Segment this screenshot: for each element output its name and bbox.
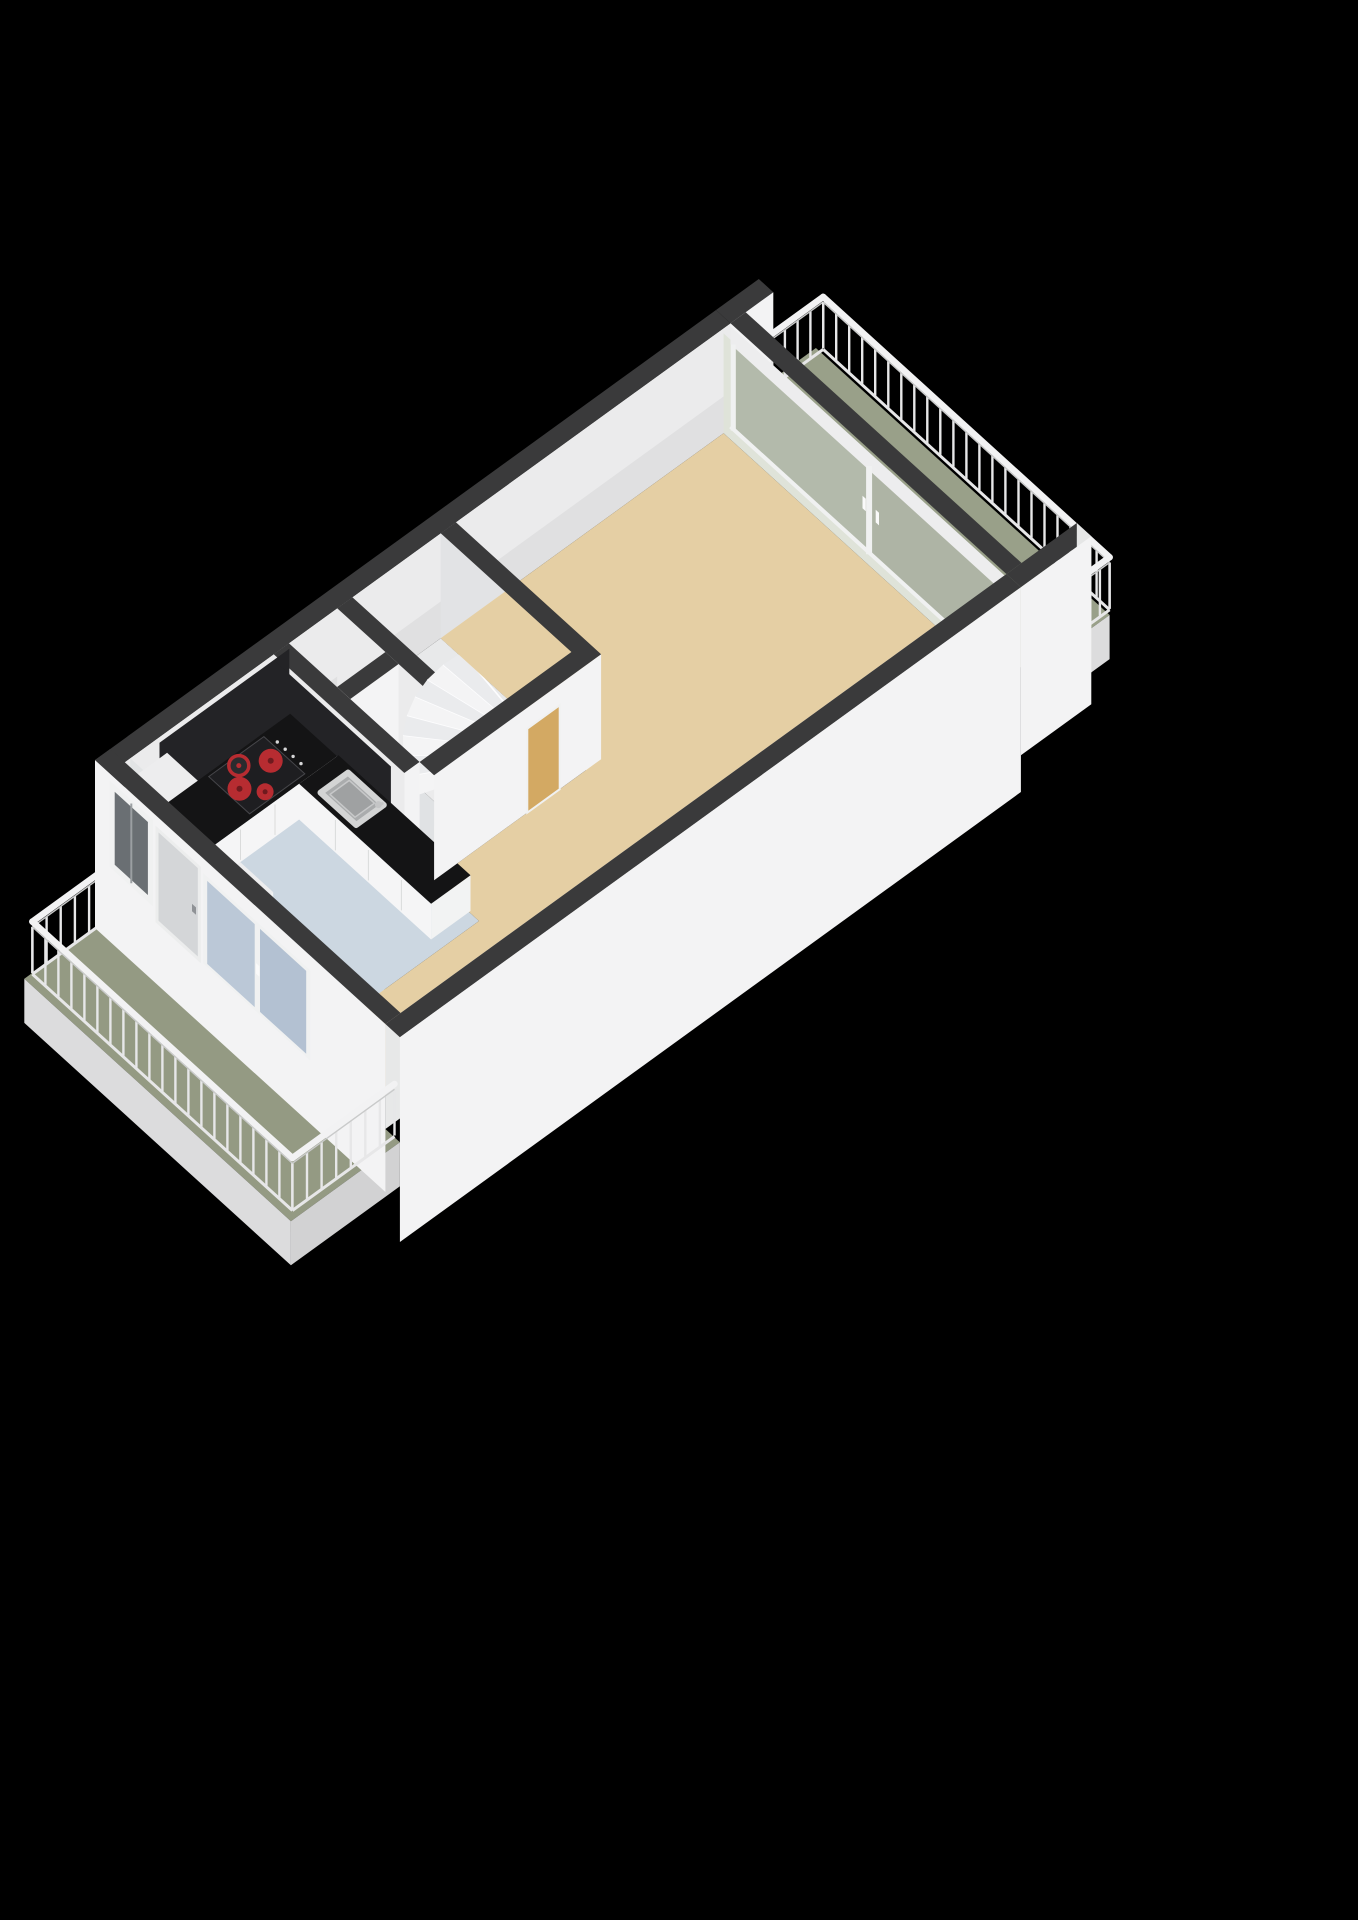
cooktop-knob <box>276 740 279 743</box>
cooktop-knob <box>291 755 294 758</box>
faucet-arm <box>378 804 382 805</box>
burner-dot <box>268 758 274 764</box>
burner-ring-center <box>236 763 241 768</box>
burner-dot <box>263 789 268 794</box>
burner-dot <box>237 786 243 792</box>
floorplan-viewport <box>0 0 1358 1920</box>
cooktop-knob <box>299 762 302 765</box>
floorplan-3d-scene <box>0 0 1358 1920</box>
cooktop-knob <box>284 748 287 751</box>
